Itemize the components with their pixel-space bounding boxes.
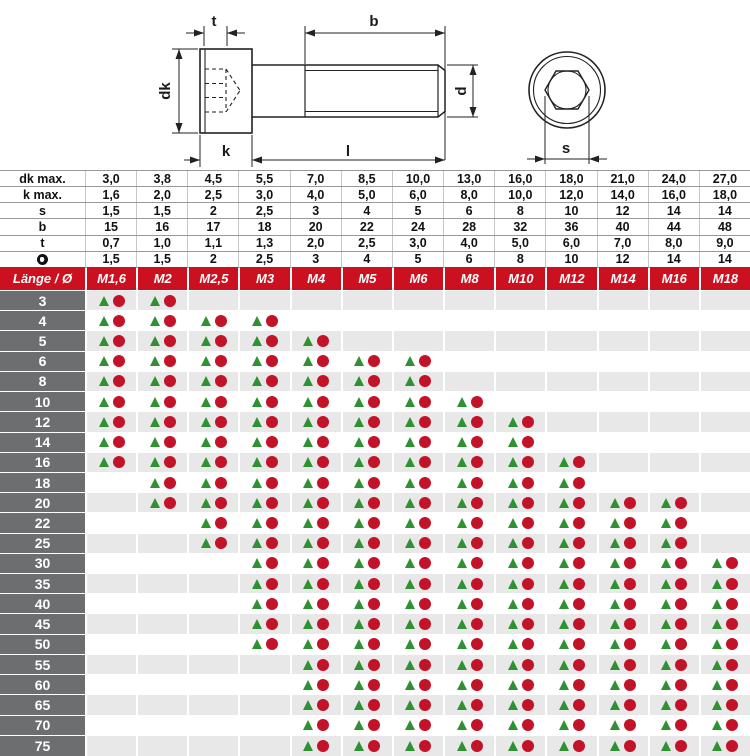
circle-marker bbox=[419, 517, 431, 529]
spec-value: 15 bbox=[85, 219, 136, 234]
availability-cell bbox=[87, 655, 136, 674]
triangle-marker bbox=[508, 680, 518, 690]
matrix-col-header: M10 bbox=[496, 267, 545, 290]
circle-marker bbox=[726, 740, 738, 752]
triangle-marker bbox=[354, 397, 364, 407]
triangle-marker bbox=[508, 700, 518, 710]
availability-cell bbox=[292, 331, 341, 350]
availability-cell bbox=[394, 291, 443, 310]
availability-cell bbox=[496, 392, 545, 411]
availability-cell bbox=[343, 433, 392, 452]
triangle-marker bbox=[150, 376, 160, 386]
triangle-marker bbox=[405, 437, 415, 447]
spec-value: 48 bbox=[699, 219, 750, 234]
circle-marker bbox=[419, 355, 431, 367]
circle-marker bbox=[624, 557, 636, 569]
circle-marker bbox=[471, 436, 483, 448]
triangle-marker bbox=[559, 680, 569, 690]
spec-value: 3,0 bbox=[85, 171, 136, 186]
availability-cell bbox=[496, 453, 545, 472]
circle-marker bbox=[419, 618, 431, 630]
availability-cell bbox=[292, 695, 341, 714]
availability-cell bbox=[496, 352, 545, 371]
availability-cell bbox=[650, 635, 699, 654]
availability-cell bbox=[650, 736, 699, 756]
triangle-marker bbox=[405, 376, 415, 386]
circle-marker bbox=[419, 557, 431, 569]
circle-marker bbox=[164, 436, 176, 448]
triangle-marker bbox=[303, 356, 313, 366]
triangle-marker bbox=[405, 579, 415, 589]
triangle-marker bbox=[354, 700, 364, 710]
triangle-marker bbox=[303, 680, 313, 690]
matrix-row-label: 3 bbox=[0, 291, 85, 310]
matrix-row-label: 60 bbox=[0, 675, 85, 694]
circle-marker bbox=[215, 355, 227, 367]
triangle-marker bbox=[405, 619, 415, 629]
matrix-col-header: M4 bbox=[292, 267, 341, 290]
triangle-marker bbox=[405, 498, 415, 508]
screw-side-view bbox=[200, 49, 445, 133]
availability-cell bbox=[240, 635, 289, 654]
availability-cell bbox=[599, 594, 648, 613]
availability-cell bbox=[292, 352, 341, 371]
availability-cell bbox=[650, 513, 699, 532]
triangle-marker bbox=[712, 639, 722, 649]
circle-marker bbox=[266, 355, 278, 367]
availability-cell bbox=[701, 412, 750, 431]
availability-cell bbox=[445, 736, 494, 756]
availability-cell bbox=[599, 352, 648, 371]
circle-marker bbox=[726, 557, 738, 569]
availability-cell bbox=[701, 574, 750, 593]
availability-cell bbox=[650, 433, 699, 452]
triangle-marker bbox=[252, 417, 262, 427]
triangle-marker bbox=[457, 599, 467, 609]
circle-marker bbox=[471, 416, 483, 428]
availability-cell bbox=[599, 635, 648, 654]
triangle-marker bbox=[457, 538, 467, 548]
availability-cell bbox=[343, 736, 392, 756]
dim-label-l: l bbox=[346, 143, 350, 160]
triangle-marker bbox=[303, 720, 313, 730]
circle-marker bbox=[164, 295, 176, 307]
availability-cell bbox=[292, 534, 341, 553]
availability-cell bbox=[599, 493, 648, 512]
triangle-marker bbox=[559, 741, 569, 751]
triangle-marker bbox=[661, 700, 671, 710]
availability-cell bbox=[547, 412, 596, 431]
spec-value: 1,5 bbox=[136, 203, 187, 218]
availability-cell bbox=[138, 331, 187, 350]
availability-cell bbox=[189, 412, 238, 431]
matrix-row-label: 40 bbox=[0, 594, 85, 613]
availability-cell bbox=[650, 695, 699, 714]
availability-cell bbox=[650, 412, 699, 431]
availability-cell bbox=[292, 513, 341, 532]
triangle-marker bbox=[303, 518, 313, 528]
triangle-marker bbox=[99, 296, 109, 306]
matrix-row: 10 bbox=[0, 392, 750, 412]
triangle-marker bbox=[99, 356, 109, 366]
triangle-marker bbox=[150, 397, 160, 407]
circle-marker bbox=[317, 659, 329, 671]
triangle-marker bbox=[457, 558, 467, 568]
availability-cell bbox=[394, 716, 443, 735]
availability-cell bbox=[496, 291, 545, 310]
circle-marker bbox=[368, 436, 380, 448]
dim-label-k: k bbox=[222, 143, 231, 160]
spec-value: 24 bbox=[392, 219, 443, 234]
triangle-marker bbox=[405, 356, 415, 366]
availability-cell bbox=[496, 655, 545, 674]
triangle-marker bbox=[405, 660, 415, 670]
availability-cell bbox=[138, 493, 187, 512]
circle-marker bbox=[573, 517, 585, 529]
availability-cell bbox=[547, 493, 596, 512]
matrix-row-label: 10 bbox=[0, 392, 85, 411]
spec-value: 1,5 bbox=[85, 252, 136, 267]
availability-cell bbox=[240, 311, 289, 330]
triangle-marker bbox=[508, 558, 518, 568]
circle-marker bbox=[675, 719, 687, 731]
availability-cell bbox=[445, 513, 494, 532]
availability-cell bbox=[701, 716, 750, 735]
matrix-row-label: 4 bbox=[0, 311, 85, 330]
circle-marker bbox=[522, 618, 534, 630]
availability-cell bbox=[292, 493, 341, 512]
circle-marker bbox=[522, 719, 534, 731]
availability-cell bbox=[701, 473, 750, 492]
circle-marker bbox=[522, 659, 534, 671]
availability-cell bbox=[394, 554, 443, 573]
availability-cell bbox=[701, 695, 750, 714]
dim-label-s: s bbox=[562, 140, 570, 157]
availability-cell bbox=[138, 554, 187, 573]
circle-marker bbox=[624, 638, 636, 650]
availability-cell bbox=[138, 716, 187, 735]
triangle-marker bbox=[99, 417, 109, 427]
circle-marker bbox=[266, 477, 278, 489]
triangle-marker bbox=[201, 356, 211, 366]
matrix-row: 35 bbox=[0, 574, 750, 594]
availability-cell bbox=[189, 433, 238, 452]
availability-cell bbox=[138, 433, 187, 452]
spec-value: 8 bbox=[494, 203, 545, 218]
availability-cell bbox=[343, 594, 392, 613]
spec-value: 21,0 bbox=[597, 171, 648, 186]
triangle-marker bbox=[99, 397, 109, 407]
availability-cell bbox=[87, 392, 136, 411]
circle-marker bbox=[368, 537, 380, 549]
matrix-row: 30 bbox=[0, 554, 750, 574]
availability-cell bbox=[496, 331, 545, 350]
circle-marker bbox=[368, 659, 380, 671]
matrix-row-label: 55 bbox=[0, 655, 85, 674]
circle-marker bbox=[675, 638, 687, 650]
circle-marker bbox=[368, 557, 380, 569]
triangle-marker bbox=[354, 376, 364, 386]
triangle-marker bbox=[661, 498, 671, 508]
circle-marker bbox=[675, 537, 687, 549]
availability-cell bbox=[701, 331, 750, 350]
availability-cell bbox=[87, 736, 136, 756]
circle-marker bbox=[573, 477, 585, 489]
circle-marker bbox=[164, 315, 176, 327]
availability-cell bbox=[445, 493, 494, 512]
availability-cell bbox=[189, 311, 238, 330]
triangle-marker bbox=[150, 417, 160, 427]
spec-value: 5,5 bbox=[238, 171, 289, 186]
triangle-marker bbox=[303, 579, 313, 589]
availability-cell bbox=[292, 433, 341, 452]
circle-marker bbox=[675, 598, 687, 610]
matrix-row-label: 50 bbox=[0, 635, 85, 654]
catalog-page: t b dk d k l s dk max.3,03,84,55,57,08,5… bbox=[0, 0, 750, 756]
circle-marker bbox=[522, 537, 534, 549]
matrix-row: 18 bbox=[0, 473, 750, 493]
triangle-marker bbox=[201, 316, 211, 326]
matrix-row-label: 45 bbox=[0, 614, 85, 633]
matrix-col-header: M16 bbox=[650, 267, 699, 290]
spec-row-label: t bbox=[0, 236, 85, 251]
circle-marker bbox=[164, 456, 176, 468]
circle-marker bbox=[419, 436, 431, 448]
circle-marker bbox=[471, 477, 483, 489]
triangle-marker bbox=[150, 316, 160, 326]
triangle-marker bbox=[405, 397, 415, 407]
spec-row-label bbox=[0, 252, 85, 267]
spec-value: 3,8 bbox=[136, 171, 187, 186]
availability-cell bbox=[599, 534, 648, 553]
triangle-marker bbox=[354, 720, 364, 730]
circle-marker bbox=[624, 598, 636, 610]
circle-marker bbox=[368, 699, 380, 711]
availability-cell bbox=[650, 614, 699, 633]
spec-value: 3 bbox=[290, 203, 341, 218]
circle-marker bbox=[522, 477, 534, 489]
triangle-marker bbox=[457, 639, 467, 649]
availability-cell bbox=[394, 392, 443, 411]
triangle-marker bbox=[252, 558, 262, 568]
availability-cell bbox=[599, 372, 648, 391]
triangle-marker bbox=[559, 457, 569, 467]
spec-value: 14,0 bbox=[597, 187, 648, 202]
triangle-marker bbox=[303, 639, 313, 649]
availability-cell bbox=[650, 372, 699, 391]
circle-marker bbox=[726, 659, 738, 671]
availability-cell bbox=[240, 331, 289, 350]
availability-cell bbox=[599, 311, 648, 330]
triangle-marker bbox=[712, 680, 722, 690]
availability-cell bbox=[394, 453, 443, 472]
availability-cell bbox=[87, 433, 136, 452]
circle-marker bbox=[675, 497, 687, 509]
triangle-marker bbox=[99, 437, 109, 447]
triangle-marker bbox=[457, 700, 467, 710]
circle-marker bbox=[471, 456, 483, 468]
spec-value: 7,0 bbox=[290, 171, 341, 186]
circle-marker bbox=[266, 456, 278, 468]
circle-marker bbox=[368, 598, 380, 610]
triangle-marker bbox=[354, 639, 364, 649]
circle-marker bbox=[368, 375, 380, 387]
triangle-marker bbox=[508, 579, 518, 589]
triangle-marker bbox=[405, 478, 415, 488]
circle-marker bbox=[471, 578, 483, 590]
circle-marker bbox=[522, 638, 534, 650]
availability-cell bbox=[87, 695, 136, 714]
circle-marker bbox=[624, 517, 636, 529]
availability-cell bbox=[599, 331, 648, 350]
circle-marker bbox=[113, 436, 125, 448]
matrix-col-header: M12 bbox=[547, 267, 596, 290]
circle-marker bbox=[624, 578, 636, 590]
availability-cell bbox=[394, 513, 443, 532]
spec-value: 0,7 bbox=[85, 236, 136, 251]
spec-value: 2 bbox=[187, 203, 238, 218]
availability-cell bbox=[394, 412, 443, 431]
matrix-row: 70 bbox=[0, 716, 750, 736]
matrix-row: 14 bbox=[0, 433, 750, 453]
availability-cell bbox=[87, 493, 136, 512]
circle-marker bbox=[522, 598, 534, 610]
availability-cell bbox=[343, 716, 392, 735]
availability-cell bbox=[701, 655, 750, 674]
triangle-marker bbox=[150, 336, 160, 346]
matrix-row: 50 bbox=[0, 635, 750, 655]
availability-cell bbox=[189, 513, 238, 532]
availability-cell bbox=[292, 655, 341, 674]
availability-cell bbox=[701, 534, 750, 553]
availability-cell bbox=[240, 352, 289, 371]
availability-cell bbox=[138, 736, 187, 756]
spec-value: 2,5 bbox=[341, 236, 392, 251]
matrix-col-header: M2 bbox=[138, 267, 187, 290]
spec-value: 2,5 bbox=[187, 187, 238, 202]
circle-marker bbox=[471, 719, 483, 731]
availability-cell bbox=[138, 412, 187, 431]
circle-marker bbox=[266, 517, 278, 529]
circle-marker bbox=[266, 557, 278, 569]
dim-label-dk: dk bbox=[157, 82, 174, 100]
circle-marker bbox=[675, 578, 687, 590]
availability-cell bbox=[87, 372, 136, 391]
availability-cell bbox=[343, 534, 392, 553]
circle-marker bbox=[266, 375, 278, 387]
availability-cell bbox=[445, 311, 494, 330]
triangle-marker bbox=[661, 579, 671, 589]
circle-marker bbox=[419, 740, 431, 752]
availability-cell bbox=[189, 493, 238, 512]
circle-marker bbox=[317, 436, 329, 448]
triangle-marker bbox=[508, 619, 518, 629]
circle-marker bbox=[471, 497, 483, 509]
triangle-marker bbox=[661, 680, 671, 690]
triangle-marker bbox=[508, 720, 518, 730]
availability-cell bbox=[496, 716, 545, 735]
availability-cell bbox=[87, 614, 136, 633]
availability-cell bbox=[292, 392, 341, 411]
triangle-marker bbox=[99, 457, 109, 467]
matrix-row-label: 6 bbox=[0, 352, 85, 371]
availability-cell bbox=[87, 635, 136, 654]
availability-cell bbox=[496, 493, 545, 512]
matrix-row: 6 bbox=[0, 352, 750, 372]
circle-marker bbox=[368, 497, 380, 509]
availability-cell bbox=[547, 635, 596, 654]
circle-marker bbox=[573, 740, 585, 752]
circle-marker bbox=[419, 477, 431, 489]
availability-cell bbox=[343, 453, 392, 472]
spec-value: 12,0 bbox=[545, 187, 596, 202]
circle-marker bbox=[266, 497, 278, 509]
availability-cell bbox=[496, 433, 545, 452]
availability-cell bbox=[496, 574, 545, 593]
availability-cell bbox=[496, 412, 545, 431]
circle-marker bbox=[675, 659, 687, 671]
availability-cell bbox=[599, 412, 648, 431]
circle-marker bbox=[164, 335, 176, 347]
availability-cell bbox=[599, 574, 648, 593]
circle-marker bbox=[113, 315, 125, 327]
availability-cell bbox=[599, 716, 648, 735]
availability-cell bbox=[599, 513, 648, 532]
triangle-marker bbox=[457, 518, 467, 528]
spec-row: 1,51,522,53456810121414 bbox=[0, 252, 750, 268]
triangle-marker bbox=[559, 579, 569, 589]
matrix-row: 20 bbox=[0, 493, 750, 513]
triangle-marker bbox=[508, 457, 518, 467]
triangle-marker bbox=[661, 720, 671, 730]
spec-value: 8 bbox=[494, 252, 545, 267]
dimension-lines bbox=[172, 26, 607, 167]
availability-cell bbox=[240, 655, 289, 674]
availability-cell bbox=[343, 493, 392, 512]
triangle-marker bbox=[354, 619, 364, 629]
hex-socket-icon bbox=[37, 254, 48, 265]
availability-cell bbox=[189, 534, 238, 553]
matrix-row-label: 22 bbox=[0, 513, 85, 532]
matrix-col-header: M1,6 bbox=[87, 267, 136, 290]
triangle-marker bbox=[201, 336, 211, 346]
matrix-row-label: 70 bbox=[0, 716, 85, 735]
circle-marker bbox=[368, 679, 380, 691]
circle-marker bbox=[113, 355, 125, 367]
availability-cell bbox=[445, 433, 494, 452]
triangle-marker bbox=[252, 599, 262, 609]
availability-cell bbox=[343, 412, 392, 431]
triangle-marker bbox=[303, 599, 313, 609]
triangle-marker bbox=[508, 437, 518, 447]
circle-marker bbox=[471, 517, 483, 529]
matrix-row: 40 bbox=[0, 594, 750, 614]
availability-cell bbox=[138, 594, 187, 613]
availability-cell bbox=[292, 412, 341, 431]
availability-cell bbox=[445, 534, 494, 553]
availability-cell bbox=[445, 635, 494, 654]
availability-cell bbox=[138, 311, 187, 330]
spec-value: 9,0 bbox=[699, 236, 750, 251]
availability-cell bbox=[240, 473, 289, 492]
triangle-marker bbox=[405, 558, 415, 568]
availability-cell bbox=[496, 473, 545, 492]
triangle-marker bbox=[610, 538, 620, 548]
circle-marker bbox=[317, 416, 329, 428]
availability-cell bbox=[547, 554, 596, 573]
availability-cell bbox=[445, 331, 494, 350]
availability-cell bbox=[445, 372, 494, 391]
